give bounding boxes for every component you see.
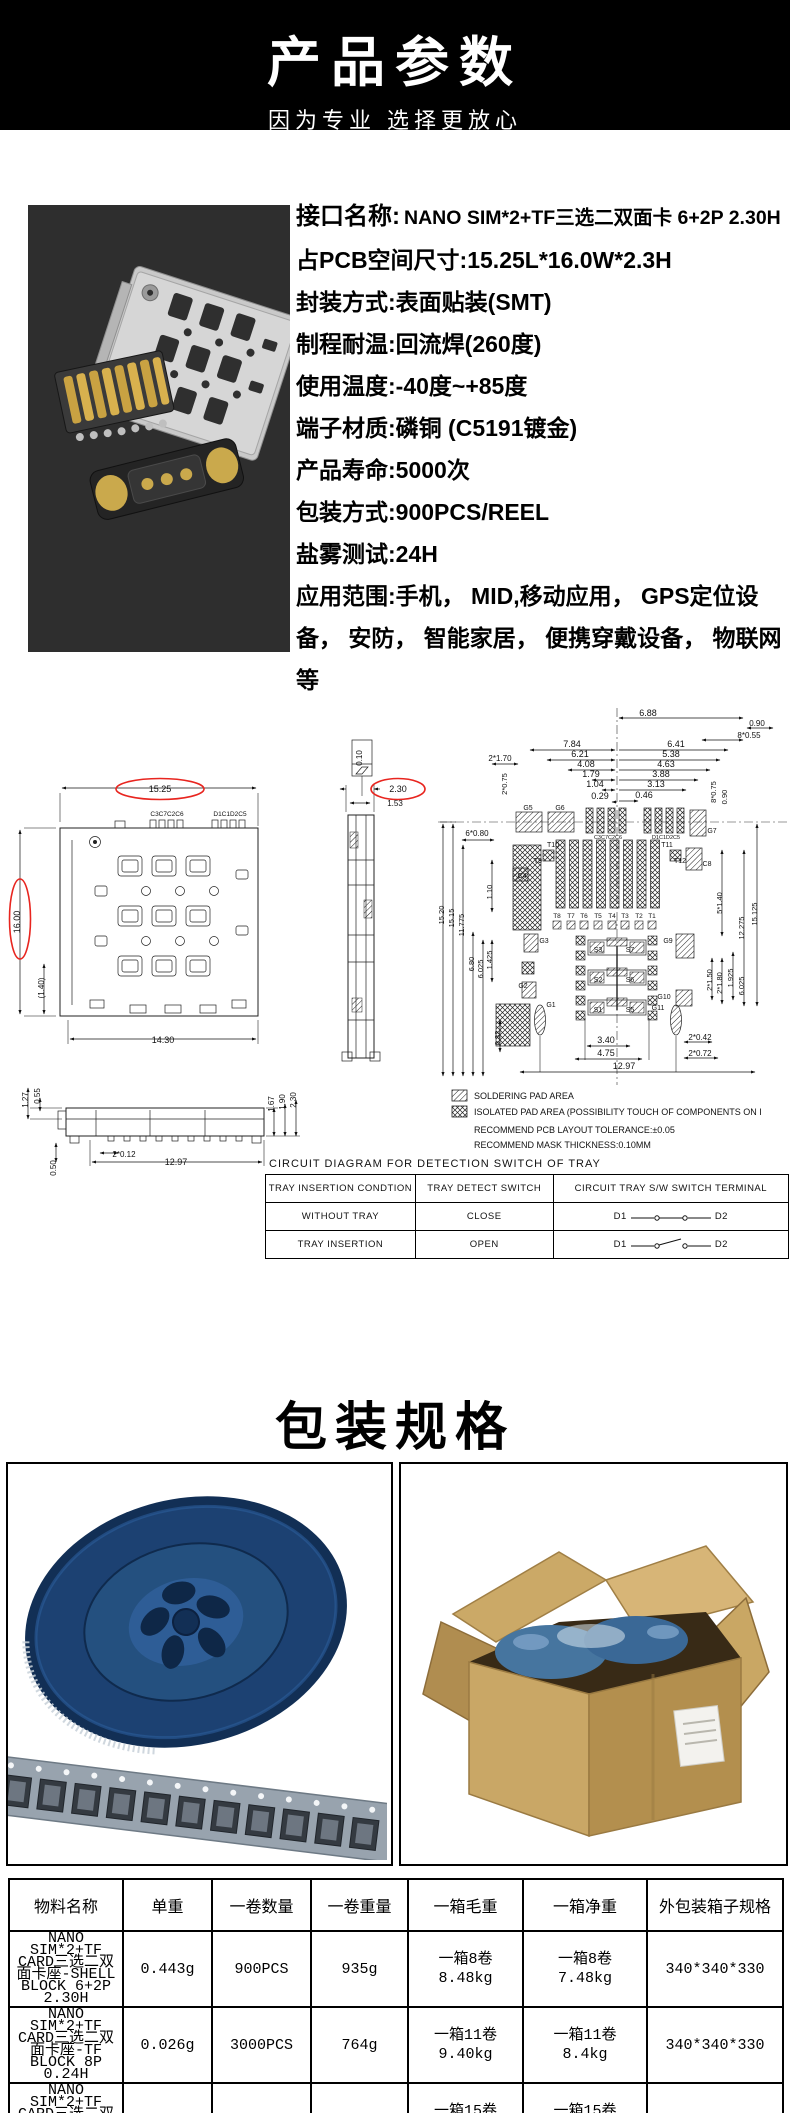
dim-label: T9: [534, 858, 542, 865]
materials-header-cell: 一卷重量: [311, 1879, 408, 1931]
product-photo-art: [28, 205, 290, 652]
dim-label: 6*0.80: [465, 829, 489, 838]
dim-label: T5: [594, 913, 602, 920]
dim-label: 1.10: [485, 885, 494, 900]
dim-label: T8: [553, 913, 561, 920]
circuit-diagram-section: CIRCUIT DIAGRAM FOR DETECTION SWITCH OF …: [265, 1158, 789, 1259]
dim-label: 5*1.40: [715, 892, 724, 914]
spec-line: 制程耐温:回流焊(260度): [296, 323, 788, 365]
switch-terminal: D1D2: [553, 1203, 788, 1231]
dim-label: 2.30: [389, 784, 407, 794]
dim-label: S3: [594, 947, 603, 954]
carton-size: 340*340*330: [647, 2083, 783, 2113]
dim-label: G11: [652, 1005, 665, 1012]
dim-label: S5: [626, 1007, 635, 1014]
materials-header-cell: 一箱毛重: [408, 1879, 523, 1931]
circuit-diagram-title: CIRCUIT DIAGRAM FOR DETECTION SWITCH OF …: [269, 1158, 789, 1170]
tray-condition: TRAY INSERTION: [266, 1231, 416, 1259]
packaging-title: 包装规格: [0, 1385, 790, 1460]
page-subtitle: 因为专业 选择更放心: [0, 103, 790, 135]
legend-soldering: SOLDERING PAD AREA: [474, 1091, 574, 1101]
carton-size: 340*340*330: [647, 2007, 783, 2083]
materials-row: NANO SIM*2+TF CARD三选二双面卡座-TF BLOCK 8P 0.…: [9, 2007, 783, 2083]
materials-table-header: 物料名称单重一卷数量一卷重量一箱毛重一箱净重外包装箱子规格: [9, 1879, 783, 1931]
box-net-weight: 一箱8卷 7.48kg: [523, 1931, 647, 2007]
reel-qty: 900PCS: [212, 1931, 311, 2007]
carton-photo-art: [401, 1464, 782, 1860]
legend-note2: RECOMMEND MASK THICKNESS:0.10MM: [474, 1140, 651, 1150]
switch-closed-icon: [631, 1210, 711, 1224]
spec-interface-label: 接口名称:: [296, 196, 400, 238]
dim-label: 7.84: [563, 739, 581, 749]
dim-label: T1: [648, 913, 656, 920]
dim-label: 6.41: [667, 739, 685, 749]
dim-label: 0.46: [635, 790, 653, 800]
side-view: [28, 1088, 300, 1166]
dim-label: T11: [661, 842, 673, 849]
circuit-row: WITHOUT TRAYCLOSED1D2: [266, 1203, 789, 1231]
pad-legend: SOLDERING PAD AREA ISOLATED PAD AREA (PO…: [452, 1090, 762, 1150]
spec-line: 应用范围:手机， MID,移动应用， GPS定位设备， 安防， 智能家居， 便携…: [296, 575, 788, 701]
spec-line: 占PCB空间尺寸:15.25L*16.0W*2.3H: [296, 239, 788, 281]
dim-label: S7: [626, 947, 635, 954]
dim-label: T4: [608, 913, 616, 920]
material-name: NANO SIM*2+TF CARD三选二双面卡座-NANO SIM BLOCK…: [9, 2083, 123, 2113]
terminal-d1: D1: [614, 1239, 627, 1250]
spec-line: 包装方式:900PCS/REEL: [296, 491, 788, 533]
dim-label: 3.40: [597, 1035, 615, 1045]
dim-label: S1: [594, 1007, 603, 1014]
switch-terminal: D1D2: [553, 1231, 788, 1259]
dim-label: 4.63: [657, 759, 675, 769]
dim-label: D1C1D2C5: [213, 811, 247, 818]
spec-line: 封装方式:表面贴装(SMT): [296, 281, 788, 323]
reel-weight: 764g: [311, 2007, 408, 2083]
dim-label: G6: [555, 805, 564, 812]
dim-label: T7: [567, 913, 575, 920]
dim-label: 4.75: [597, 1048, 615, 1058]
box-net-weight: 一箱11卷 8.4kg: [523, 2007, 647, 2083]
dim-label: S6: [626, 977, 635, 984]
dim-label: 1.67: [267, 1096, 276, 1112]
spec-line: 使用温度:-40度~+85度: [296, 365, 788, 407]
dim-label: C8: [703, 861, 712, 868]
dim-label: 6.88: [639, 708, 657, 718]
dim-label: T12: [674, 858, 686, 865]
switch-state: CLOSE: [415, 1203, 553, 1231]
circuit-row: TRAY INSERTIONOPEND1D2: [266, 1231, 789, 1259]
dim-label: 12.97: [613, 1061, 636, 1071]
dim-label: T6: [580, 913, 588, 920]
terminal-diagram: D1D2: [556, 1210, 786, 1224]
dim-label: 8*0.75: [709, 781, 718, 803]
dim-label: 1.925: [726, 969, 735, 988]
legend-isolated: ISOLATED PAD AREA (POSSIBILITY TOUCH OF …: [474, 1107, 762, 1117]
spec-lines: 占PCB空间尺寸:15.25L*16.0W*2.3H封装方式:表面贴装(SMT)…: [296, 239, 788, 701]
circuit-header-row: TRAY INSERTION CONDTIONTRAY DETECT SWITC…: [266, 1175, 789, 1203]
reel-weight: 935g: [311, 1931, 408, 2007]
dim-label: 2.30: [289, 1092, 298, 1108]
dim-label: 0.90: [720, 790, 729, 805]
dim-label: 2*0.75: [500, 773, 509, 795]
terminal-d2: D2: [715, 1211, 728, 1222]
dim-label: 2*1.70: [488, 754, 512, 763]
dim-label: 14.30: [152, 1035, 175, 1045]
dim-label: 6.025: [737, 977, 746, 996]
unit-weight: 0.030g: [123, 2083, 212, 2113]
dim-label: 6.025: [476, 960, 485, 979]
switch-open-icon: [631, 1238, 711, 1252]
terminal-d1: D1: [614, 1211, 627, 1222]
dim-label: 4.08: [577, 759, 595, 769]
dim-label: 0.55: [33, 1088, 42, 1104]
dim-label: 0.50: [49, 1160, 58, 1176]
unit-weight: 0.026g: [123, 2007, 212, 2083]
dim-label: 6.21: [571, 749, 589, 759]
dim-label: 12.97: [165, 1157, 188, 1167]
materials-header-cell: 一箱净重: [523, 1879, 647, 1931]
dim-label: S2: [594, 977, 603, 984]
reel-photo-art: [8, 1464, 387, 1860]
dim-label: 12.275: [737, 917, 746, 940]
dim-label: C3C7C2C6: [150, 811, 184, 818]
spec-interface: 接口名称: NANO SIM*2+TF三选二双面卡 6+2P 2.30H: [296, 196, 788, 239]
section-view: [340, 740, 380, 1061]
dim-label: G10: [657, 994, 670, 1001]
dim-label: 15.25: [149, 784, 172, 794]
dim-label: 16.00: [12, 911, 22, 934]
materials-row: NANO SIM*2+TF CARD三选二双面卡座-NANO SIM BLOCK…: [9, 2083, 783, 2113]
carton-size: 340*340*330: [647, 1931, 783, 2007]
dim-label: 2*0.42: [688, 1033, 712, 1042]
dim-label: 0.10: [355, 750, 364, 766]
dim-label: 15.15: [447, 909, 456, 928]
dim-label: C4: [518, 873, 527, 880]
box-gross-weight: 一箱11卷 9.40kg: [408, 2007, 523, 2083]
dim-label: 15.20: [437, 906, 446, 925]
circuit-header-cell: TRAY DETECT SWITCH: [415, 1175, 553, 1203]
dim-label: 2*0.12: [112, 1150, 136, 1159]
materials-header-cell: 外包装箱子规格: [647, 1879, 783, 1931]
dim-label: T2: [635, 913, 643, 920]
dim-label: T10: [547, 842, 559, 849]
dim-label: 15.125: [750, 903, 759, 926]
dim-label: D1C1D2C5: [652, 835, 680, 841]
dim-label: G3: [539, 938, 548, 945]
dim-label: 2*1.80: [715, 972, 724, 994]
materials-header-cell: 物料名称: [9, 1879, 123, 1931]
top-view: [20, 788, 258, 1044]
dim-label: 6.80: [467, 957, 476, 972]
reel-qty: 4000PCS: [212, 2083, 311, 2113]
pcb-layout: SOLDERING PAD AREA ISOLATED PAD AREA (PO…: [438, 708, 788, 1150]
dim-label: 11.775: [457, 914, 466, 936]
materials-row: NANO SIM*2+TF CARD三选二双面卡座-SHELL BLOCK 6+…: [9, 1931, 783, 2007]
material-name: NANO SIM*2+TF CARD三选二双面卡座-TF BLOCK 8P 0.…: [9, 2007, 123, 2083]
product-spec-page: 产品参数 因为专业 选择更放心: [0, 0, 790, 2113]
spec-line: 盐雾测试:24H: [296, 533, 788, 575]
spec-interface-value: NANO SIM*2+TF三选二双面卡 6+2P 2.30H: [404, 197, 781, 239]
dim-label: G9: [663, 938, 672, 945]
reel-qty: 3000PCS: [212, 2007, 311, 2083]
dim-label: C3C7C2C6: [594, 835, 622, 841]
dim-label: T3: [621, 913, 629, 920]
dim-label: 1.04: [586, 779, 604, 789]
dim-label: 2*0.72: [688, 1049, 712, 1058]
materials-header-cell: 单重: [123, 1879, 212, 1931]
dim-label: 1.27: [21, 1092, 30, 1108]
dim-label: 0.32: [493, 1031, 502, 1046]
box-gross-weight: 一箱15卷 11.10kg: [408, 2083, 523, 2113]
circuit-table: TRAY INSERTION CONDTIONTRAY DETECT SWITC…: [265, 1174, 789, 1259]
dim-label: G2: [518, 983, 527, 990]
dim-label: 1.53: [387, 799, 403, 808]
reel-weight: 674g: [311, 2083, 408, 2113]
reel-photo: [6, 1462, 393, 1866]
terminal-diagram: D1D2: [556, 1238, 786, 1252]
dim-label: 1.90: [278, 1094, 287, 1110]
box-net-weight: 一箱15卷 10.10kg: [523, 2083, 647, 2113]
material-name: NANO SIM*2+TF CARD三选二双面卡座-SHELL BLOCK 6+…: [9, 1931, 123, 2007]
circuit-header-cell: CIRCUIT TRAY S/W SWITCH TERMINAL: [553, 1175, 788, 1203]
legend-note1: RECOMMEND PCB LAYOUT TOLERANCE:±0.05: [474, 1125, 675, 1135]
dim-label: G7: [707, 828, 716, 835]
dim-label: 8*0.55: [737, 731, 761, 740]
circuit-header-cell: TRAY INSERTION CONDTION: [266, 1175, 416, 1203]
terminal-d2: D2: [715, 1239, 728, 1250]
spec-list: 接口名称: NANO SIM*2+TF三选二双面卡 6+2P 2.30H 占PC…: [296, 196, 788, 701]
dim-label: 0.29: [591, 791, 609, 801]
product-photo: [28, 205, 290, 652]
dim-label: 1.79: [582, 769, 600, 779]
spec-line: 端子材质:磷铜 (C5191镀金): [296, 407, 788, 449]
dim-label: 2*1.50: [705, 969, 714, 991]
dim-label: 5.38: [662, 749, 680, 759]
dim-label: 3.88: [652, 769, 670, 779]
materials-header-cell: 一卷数量: [212, 1879, 311, 1931]
box-gross-weight: 一箱8卷 8.48kg: [408, 1931, 523, 2007]
page-header: 产品参数 因为专业 选择更放心: [0, 0, 790, 130]
dim-label: (1.40): [37, 977, 46, 998]
switch-state: OPEN: [415, 1231, 553, 1259]
dim-label: 3.13: [647, 779, 665, 789]
dim-label: 0.90: [749, 719, 765, 728]
materials-table: 物料名称单重一卷数量一卷重量一箱毛重一箱净重外包装箱子规格 NANO SIM*2…: [8, 1878, 784, 2113]
dim-label: 1.425: [485, 951, 494, 970]
unit-weight: 0.443g: [123, 1931, 212, 2007]
tray-condition: WITHOUT TRAY: [266, 1203, 416, 1231]
spec-line: 产品寿命:5000次: [296, 449, 788, 491]
dim-label: G1: [546, 1002, 555, 1009]
dim-label: G5: [523, 805, 532, 812]
page-title: 产品参数: [0, 18, 790, 97]
carton-photo: [399, 1462, 788, 1866]
